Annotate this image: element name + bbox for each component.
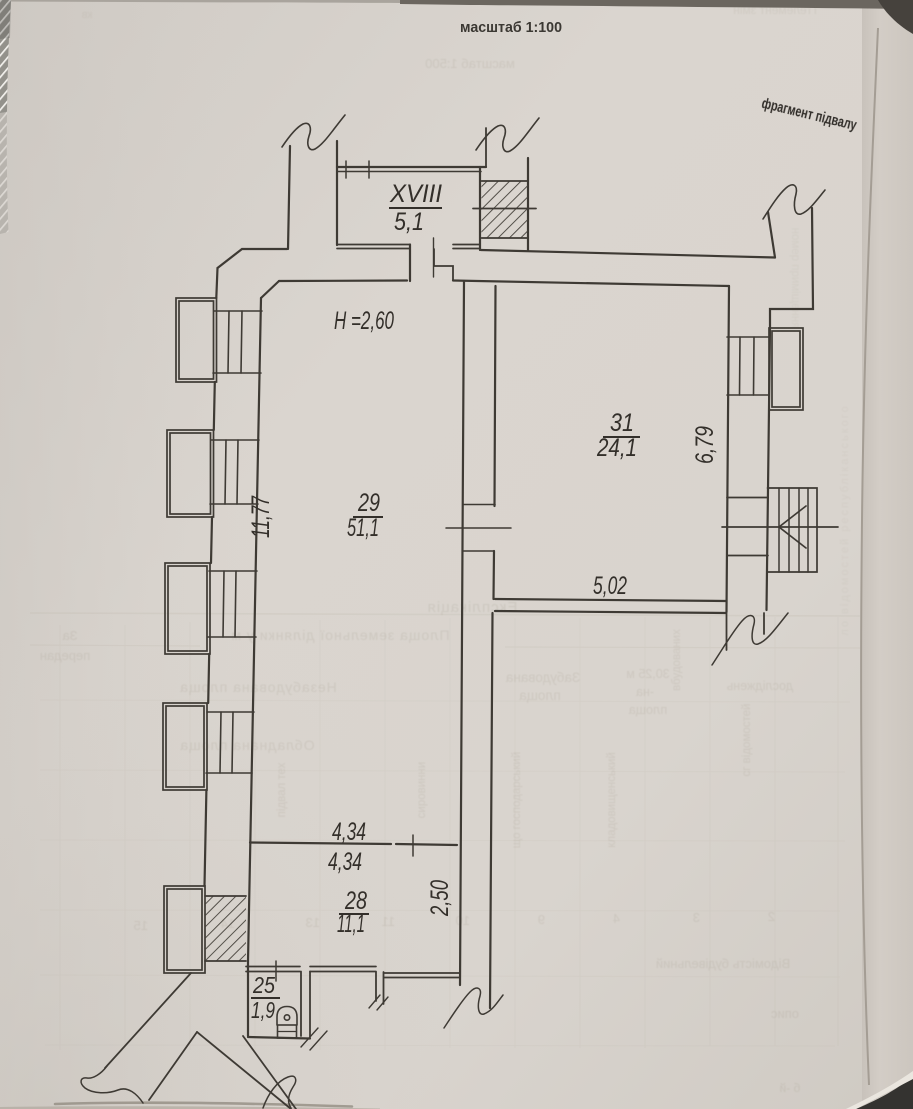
svg-text:2: 2 — [768, 909, 775, 924]
svg-text:площа: площа — [629, 703, 667, 717]
svg-text:вбудованих: вбудованих — [671, 629, 683, 691]
svg-text:31: 31 — [610, 409, 634, 437]
svg-text:масштаб 1:500: масштаб 1:500 — [425, 56, 515, 71]
svg-text:кладовищенський: кладовищенський — [606, 752, 618, 848]
svg-text:1,9: 1,9 — [251, 997, 275, 1023]
svg-text:що господарський: що господарський — [511, 752, 523, 849]
svg-text:13: 13 — [306, 915, 320, 930]
svg-text:б -й: б -й — [780, 1081, 801, 1095]
svg-text:15: 15 — [134, 918, 148, 933]
svg-text:Експлікація: Експлікація — [427, 599, 518, 616]
svg-text:4: 4 — [613, 911, 620, 926]
svg-text:51,1: 51,1 — [347, 514, 379, 542]
svg-text:Забудована: Забудована — [505, 670, 580, 685]
svg-text:масштаб 1:100: масштаб 1:100 — [460, 19, 562, 36]
svg-text:4,34: 4,34 — [328, 848, 362, 876]
svg-text:9: 9 — [538, 912, 545, 927]
svg-text:Незабудована площа: Незабудована площа — [179, 679, 336, 695]
svg-text:кв: кв — [82, 9, 93, 21]
svg-text:5,02: 5,02 — [593, 572, 627, 600]
svg-text:передан: передан — [40, 648, 90, 663]
svg-text:H =2,60: H =2,60 — [334, 307, 394, 335]
svg-text:30,25 м: 30,25 м — [626, 667, 669, 681]
svg-text:6,79: 6,79 — [691, 426, 719, 464]
svg-text:номер приміщення: номер приміщення — [789, 228, 801, 329]
svg-text:підвал тех: підвал тех — [276, 762, 288, 817]
svg-text:Відомість будівельний: Відомість будівельний — [656, 956, 790, 971]
svg-text:За: За — [62, 628, 78, 643]
svg-text:XVIII: XVIII — [389, 180, 442, 208]
svg-text:опис: опис — [770, 1006, 799, 1021]
svg-text:сг відомостей: сг відомостей — [741, 704, 753, 777]
svg-text:4,34: 4,34 — [332, 818, 366, 846]
svg-text:5,1: 5,1 — [394, 208, 424, 236]
svg-text:-на: -на — [636, 685, 654, 699]
svg-text:11,1: 11,1 — [337, 910, 365, 938]
svg-text:24,1: 24,1 — [596, 434, 637, 462]
svg-text:площа: площа — [519, 688, 561, 703]
svg-text:11: 11 — [382, 914, 396, 929]
svg-text:досліджень: досліджень — [727, 679, 794, 693]
svg-text:Площа земельної ділянки у м: Площа земельної ділянки у м — [230, 627, 449, 643]
svg-text:25: 25 — [252, 972, 275, 998]
svg-text:11,77: 11,77 — [247, 495, 275, 538]
svg-text:і гелемент змін: і гелемент змін — [733, 3, 817, 17]
svg-text:ло відомостей республіканськог: ло відомостей республіканського — [839, 404, 851, 635]
svg-text:29: 29 — [357, 489, 380, 517]
svg-text:2,50: 2,50 — [426, 880, 454, 917]
svg-text:сировинни: сировинни — [416, 762, 428, 819]
svg-text:Обладнана площа: Обладнана площа — [179, 737, 314, 753]
svg-text:3: 3 — [693, 910, 700, 925]
svg-text:10: 10 — [456, 913, 470, 928]
